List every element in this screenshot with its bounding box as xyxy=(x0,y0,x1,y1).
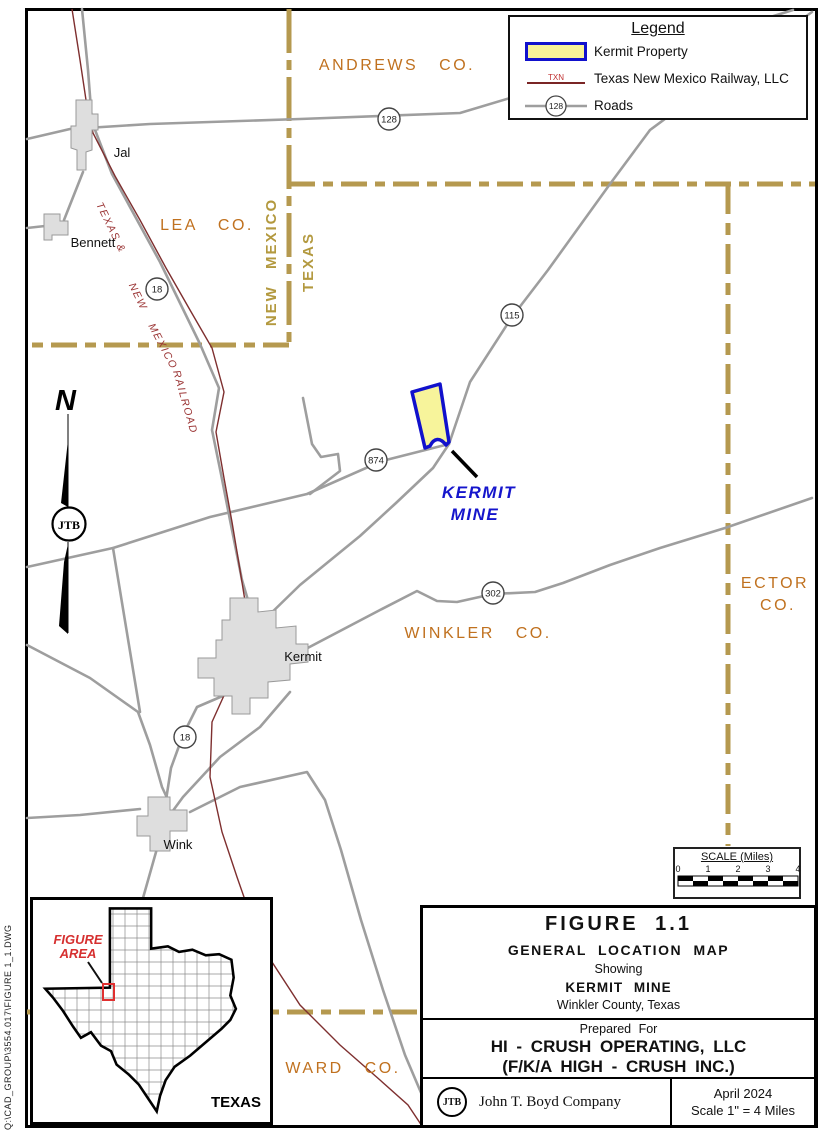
shield-18s-label: 18 xyxy=(180,733,191,744)
figure-subtitle: GENERAL LOCATION MAP xyxy=(423,942,814,958)
shield-874-label: 874 xyxy=(368,456,384,467)
railway-abbr: TXN xyxy=(548,74,564,82)
road-jog xyxy=(303,398,340,494)
legend: Legend Kermit Property TXN Texas New Mex… xyxy=(508,15,808,120)
title-block: FIGURE 1.1 GENERAL LOCATION MAP Showing … xyxy=(420,905,817,1128)
legend-shield-number: 128 xyxy=(549,101,563,111)
scale-tick-0: 0 xyxy=(675,864,680,874)
north-arrow-lower-blade xyxy=(59,544,68,634)
title-block-footer: JTB John T. Boyd Company April 2024 Scal… xyxy=(423,1079,814,1125)
road-nw-wink xyxy=(27,645,168,800)
inset-state-label: TEXAS xyxy=(211,1094,261,1111)
shield-115: 115 xyxy=(501,304,523,326)
client-name-line2: (F/K/A HIGH - CRUSH INC.) xyxy=(423,1057,814,1077)
figure-date: April 2024 xyxy=(672,1085,814,1102)
road-bennett-jal xyxy=(64,172,83,220)
figure-page: ANDREWS CO. LEA CO. WINKLER CO. ECTOR CO… xyxy=(0,0,825,1136)
legend-item-roads: 128 Roads xyxy=(510,92,806,119)
north-arrow-upper-blade xyxy=(61,440,68,507)
kermit-property-swatch xyxy=(518,42,594,61)
figure-area-label-line2: AREA xyxy=(59,946,97,961)
state-label-new-mexico: NEW MEXICO xyxy=(263,198,280,326)
scale-bar-title: SCALE (Miles) xyxy=(675,851,799,863)
shield-874: 874 xyxy=(365,449,387,471)
road-west-wink xyxy=(27,809,140,818)
county-label-ward: WARD CO. xyxy=(285,1060,400,1077)
scale-tick-3: 3 xyxy=(765,864,770,874)
figure-area-label-line1: FIGURE xyxy=(53,932,102,947)
road-shields: 128 18 115 874 302 18 xyxy=(146,108,523,748)
town-label-kermit: Kermit xyxy=(284,649,322,664)
shield-302: 302 xyxy=(482,582,504,604)
shield-115-label: 115 xyxy=(504,311,519,322)
client-name-line1: HI - CRUSH OPERATING, LLC xyxy=(423,1037,814,1057)
legend-label-property: Kermit Property xyxy=(594,44,688,59)
railway-line-symbol: TXN xyxy=(518,74,594,84)
jtb-logo: JTB xyxy=(437,1087,467,1117)
legend-item-railway: TXN Texas New Mexico Railway, LLC xyxy=(510,65,806,92)
shield-18-north: 18 xyxy=(146,278,168,300)
figure-number: FIGURE 1.1 xyxy=(423,913,814,936)
railroad-label-railroad: RAILROAD xyxy=(170,369,200,435)
shield-128: 128 xyxy=(378,108,400,130)
county-name: Winkler County, Texas xyxy=(423,998,814,1012)
road-18-north xyxy=(82,9,250,607)
scale-tick-1: 1 xyxy=(705,864,710,874)
scale-bar-graphic: 0 1 2 3 4 xyxy=(675,863,801,893)
legend-item-property: Kermit Property xyxy=(510,38,806,65)
mine-label: KERMIT MINE xyxy=(442,483,516,524)
county-label-andrews: ANDREWS CO. xyxy=(319,57,475,74)
road-874-spur xyxy=(113,548,140,712)
mine-label-line2: MINE xyxy=(451,505,500,524)
author-name: John T. Boyd Company xyxy=(479,1094,621,1111)
scale-tick-2: 2 xyxy=(735,864,740,874)
legend-label-railway: Texas New Mexico Railway, LLC xyxy=(594,71,789,86)
figure-scale: Scale 1" = 4 Miles xyxy=(672,1102,814,1119)
title-block-client: Prepared For HI - CRUSH OPERATING, LLC (… xyxy=(423,1020,814,1079)
shield-18-south: 18 xyxy=(174,726,196,748)
scale-bar: SCALE (Miles) 0 1 2 3 4 xyxy=(673,847,801,899)
road-kermit-wink xyxy=(172,692,290,812)
shield-128-label: 128 xyxy=(381,115,397,126)
town-label-wink: Wink xyxy=(164,837,193,852)
title-block-heading: FIGURE 1.1 GENERAL LOCATION MAP Showing … xyxy=(423,908,814,1020)
prepared-for-label: Prepared For xyxy=(423,1022,814,1036)
showing-label: Showing xyxy=(423,962,814,976)
kermit-property-parcel xyxy=(412,384,449,448)
county-label-winkler: WINKLER CO. xyxy=(404,625,551,642)
road-shield-symbol: 128 xyxy=(518,94,594,118)
texas-inset-map: FIGURE AREA TEXAS xyxy=(30,897,273,1125)
mine-name: KERMIT MINE xyxy=(423,980,814,995)
shield-18n-label: 18 xyxy=(152,285,163,296)
north-arrow: N JTB xyxy=(53,385,86,634)
town-label-bennett: Bennett xyxy=(71,235,116,250)
jtb-logo-monogram: JTB xyxy=(58,518,80,532)
mine-leader-line xyxy=(452,451,477,477)
county-label-ector-co: CO. xyxy=(760,597,796,614)
shield-302-label: 302 xyxy=(485,589,501,600)
mine-label-line1: KERMIT xyxy=(442,483,516,502)
scale-tick-4: 4 xyxy=(795,864,800,874)
town-label-jal: Jal xyxy=(114,145,131,160)
road-bennett-west xyxy=(27,226,45,228)
figure-area-leader xyxy=(88,962,102,983)
county-label-ector: ECTOR xyxy=(741,575,809,592)
county-label-lea: LEA CO. xyxy=(160,217,254,234)
date-scale-cell: April 2024 Scale 1" = 4 Miles xyxy=(670,1079,814,1125)
legend-title: Legend xyxy=(510,20,806,38)
state-label-texas: TEXAS xyxy=(300,232,317,292)
author-cell: JTB John T. Boyd Company xyxy=(423,1079,670,1125)
legend-label-roads: Roads xyxy=(594,98,633,113)
drawing-file-note: Q:\CAD_GROUP\3554.017\FIGURE 1_1.DWG xyxy=(3,924,13,1130)
north-label: N xyxy=(55,385,77,417)
